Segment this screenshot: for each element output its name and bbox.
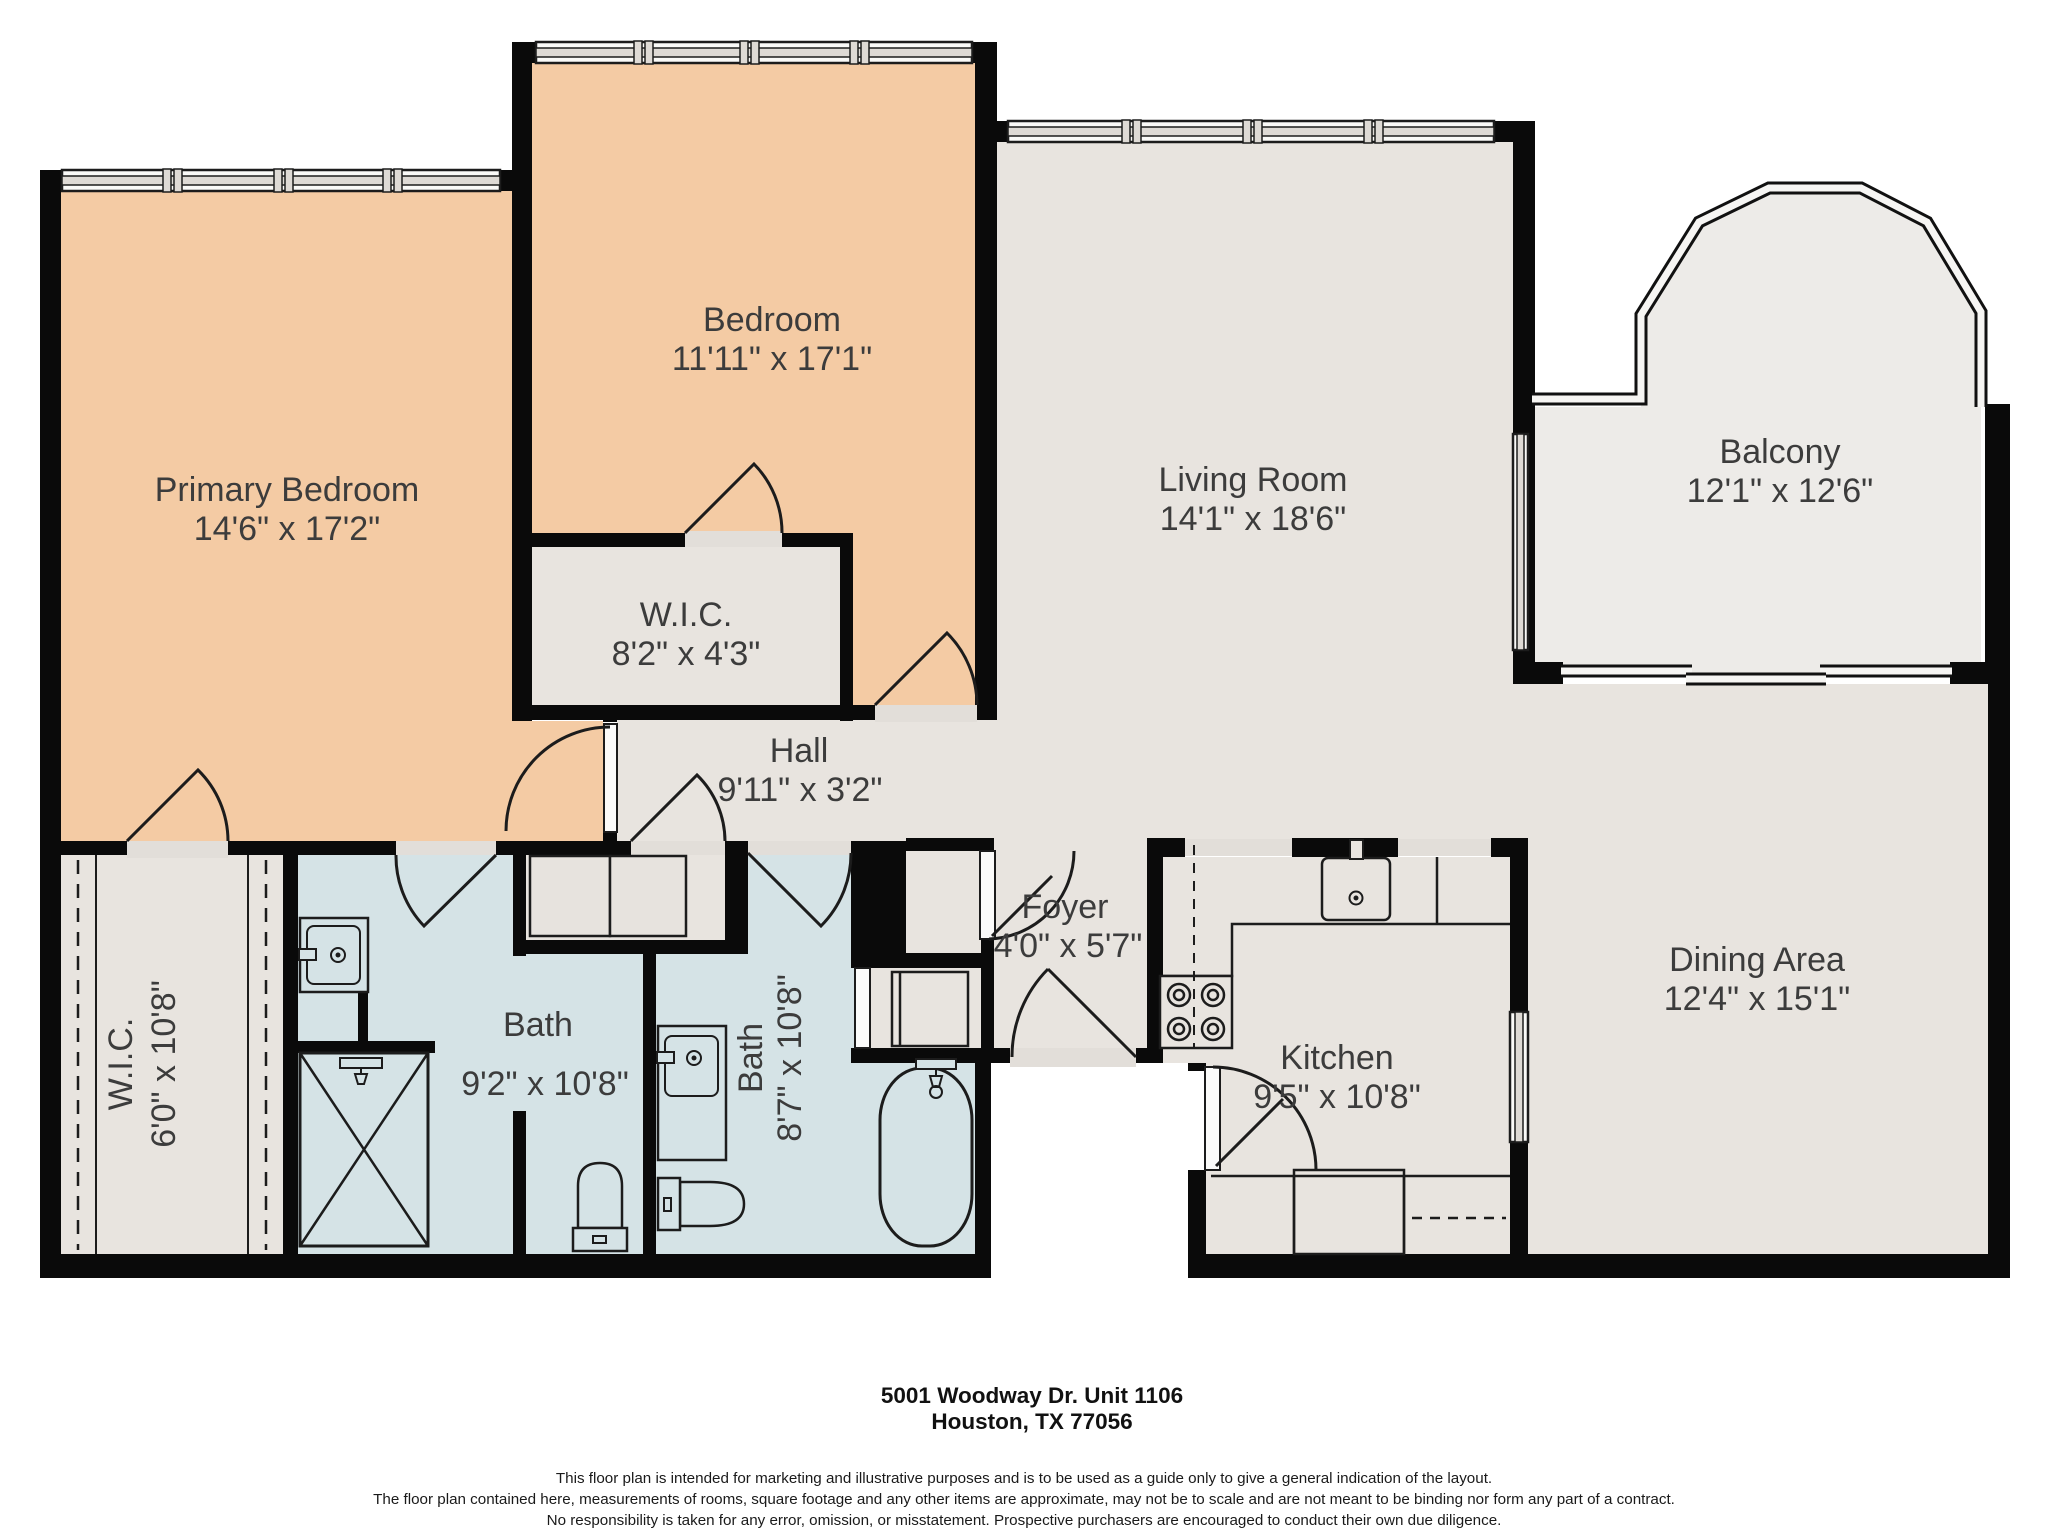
svg-text:Dining Area: Dining Area xyxy=(1669,941,1845,979)
svg-text:Hall: Hall xyxy=(770,732,829,770)
svg-text:9'2" x 10'8": 9'2" x 10'8" xyxy=(461,1065,629,1103)
svg-text:This floor plan is intended fo: This floor plan is intended for marketin… xyxy=(556,1470,1492,1487)
svg-text:5001 Woodway Dr. Unit 1106: 5001 Woodway Dr. Unit 1106 xyxy=(881,1383,1183,1408)
svg-text:9'5" x 10'8": 9'5" x 10'8" xyxy=(1253,1078,1421,1116)
svg-text:14'6" x 17'2": 14'6" x 17'2" xyxy=(194,510,380,548)
svg-text:The floor plan contained here,: The floor plan contained here, measureme… xyxy=(373,1491,1675,1508)
svg-text:W.I.C.: W.I.C. xyxy=(640,596,733,634)
svg-text:Bath: Bath xyxy=(503,1006,573,1044)
svg-text:Balcony: Balcony xyxy=(1720,433,1841,471)
svg-text:No responsibility is taken for: No responsibility is taken for any error… xyxy=(547,1512,1502,1529)
svg-text:12'1" x 12'6": 12'1" x 12'6" xyxy=(1687,472,1873,510)
svg-text:Bath: Bath xyxy=(732,1023,770,1093)
svg-text:11'11" x 17'1": 11'11" x 17'1" xyxy=(672,340,872,378)
svg-text:Kitchen: Kitchen xyxy=(1280,1039,1393,1077)
svg-text:Living Room: Living Room xyxy=(1159,461,1348,499)
svg-text:9'11" x 3'2": 9'11" x 3'2" xyxy=(717,771,882,809)
svg-text:W.I.C.: W.I.C. xyxy=(102,1018,140,1111)
svg-text:8'2" x 4'3": 8'2" x 4'3" xyxy=(612,635,761,673)
svg-text:6'0" x 10'8": 6'0" x 10'8" xyxy=(145,980,183,1148)
svg-text:12'4" x 15'1": 12'4" x 15'1" xyxy=(1664,980,1850,1018)
svg-text:4'0" x 5'7": 4'0" x 5'7" xyxy=(994,927,1143,965)
svg-text:14'1" x 18'6": 14'1" x 18'6" xyxy=(1160,500,1346,538)
svg-text:8'7" x 10'8": 8'7" x 10'8" xyxy=(771,974,809,1142)
svg-text:Houston, TX 77056: Houston, TX 77056 xyxy=(931,1409,1132,1434)
svg-text:Foyer: Foyer xyxy=(1022,888,1109,926)
svg-text:Primary Bedroom: Primary Bedroom xyxy=(155,471,420,509)
svg-text:Bedroom: Bedroom xyxy=(703,301,841,339)
